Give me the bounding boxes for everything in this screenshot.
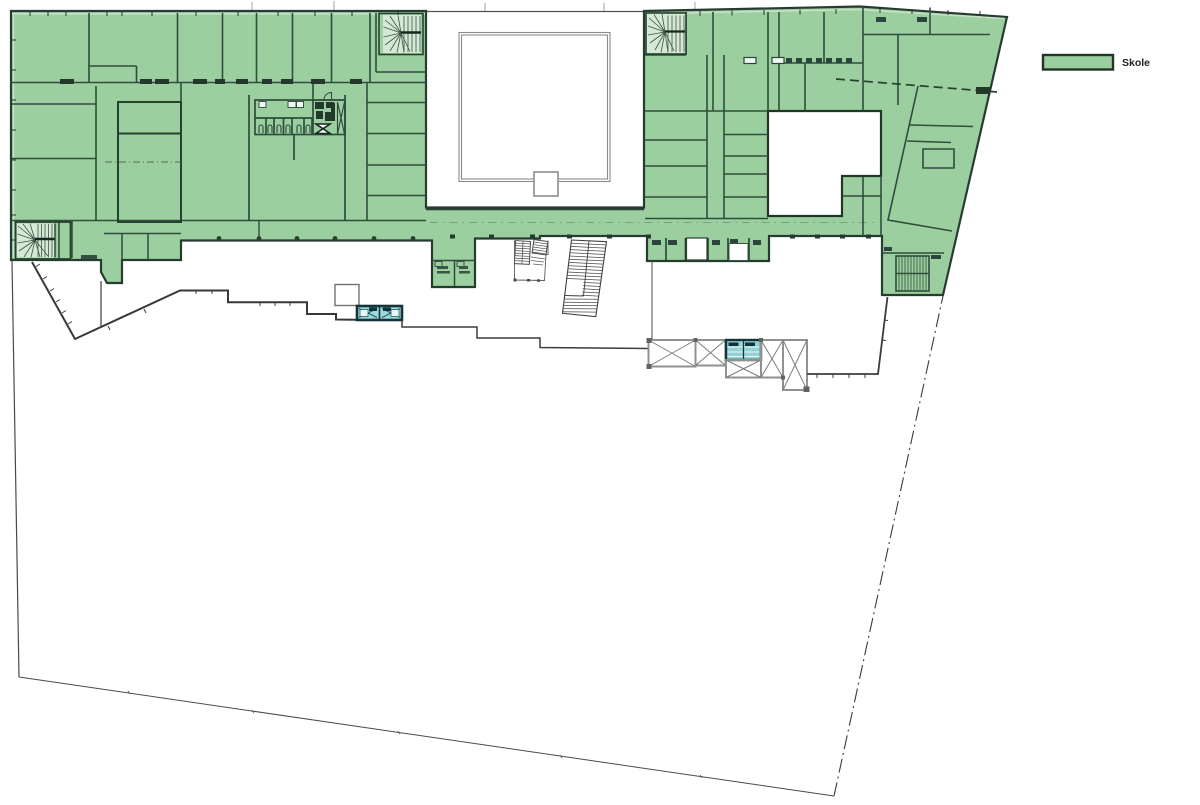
svg-text:Skole: Skole bbox=[1122, 57, 1150, 69]
